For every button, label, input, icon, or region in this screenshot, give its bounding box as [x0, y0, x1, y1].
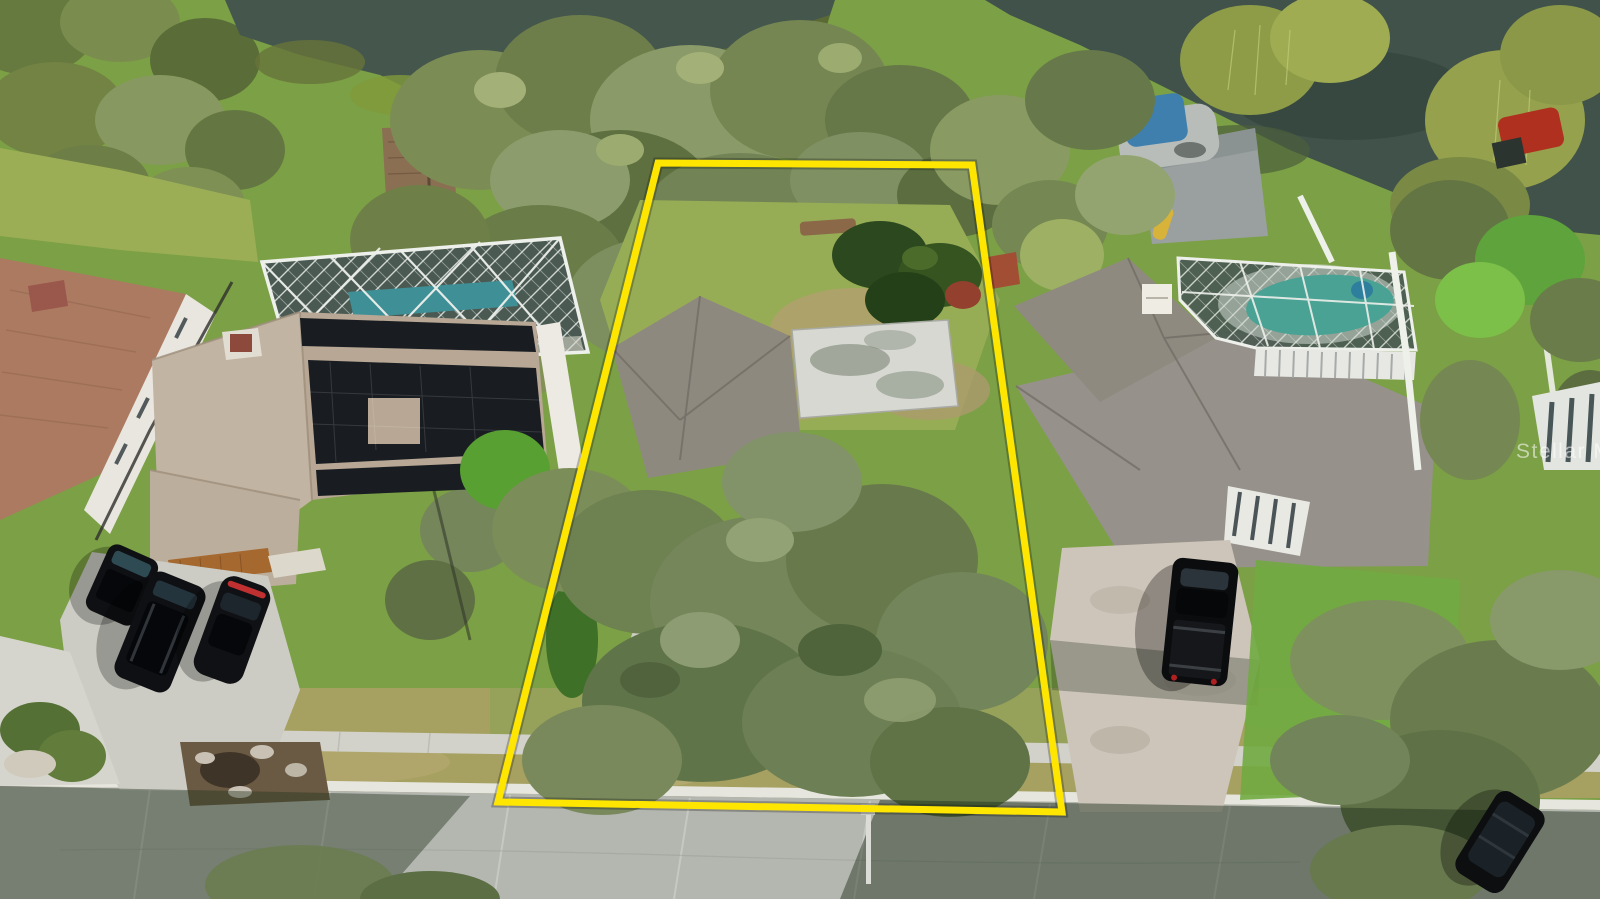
aerial-photo-stage: Stellar MLS: [0, 0, 1600, 899]
red-shrub: [945, 281, 981, 309]
louver-roof: [1254, 348, 1416, 380]
right-pool-enclosure: [1178, 258, 1416, 350]
aerial-photo: Stellar MLS: [0, 0, 1600, 899]
stellar-mls-watermark: Stellar MLS: [1516, 440, 1600, 463]
carport-roof: [792, 320, 958, 418]
